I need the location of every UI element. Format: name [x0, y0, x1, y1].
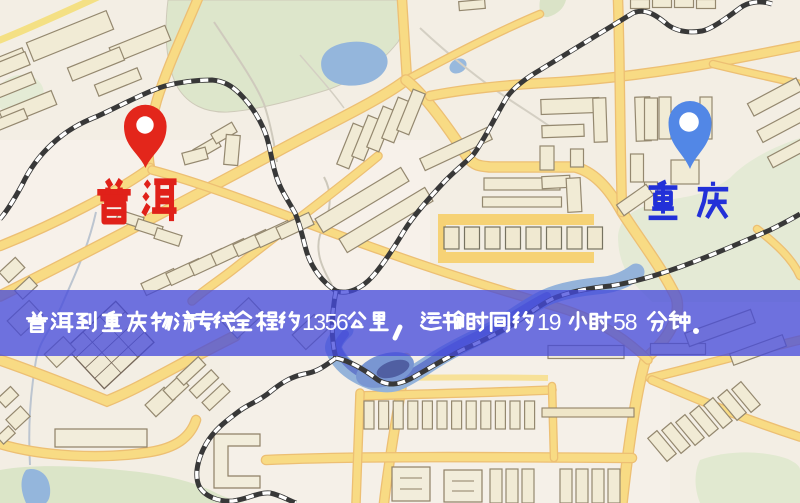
svg-text:1356: 1356 — [302, 309, 348, 335]
svg-text:58: 58 — [613, 309, 637, 335]
svg-text:19: 19 — [537, 309, 561, 335]
